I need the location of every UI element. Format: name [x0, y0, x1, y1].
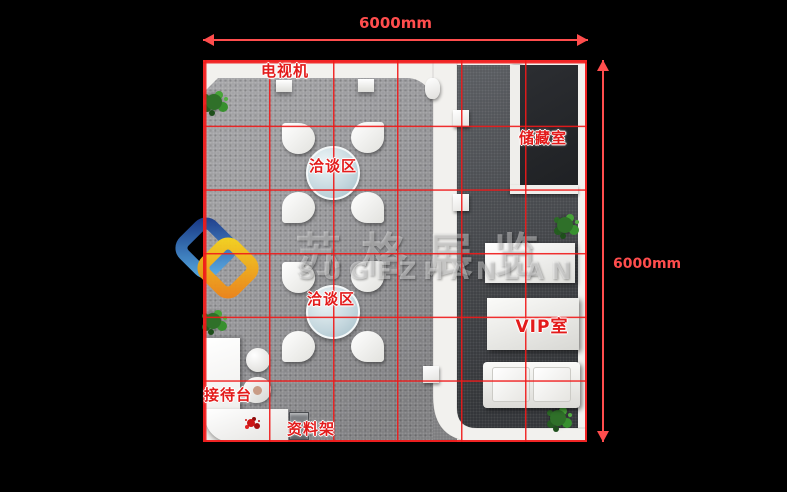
dimension-top: 6000mm: [203, 14, 588, 54]
label-meeting-area-1: 洽谈区: [309, 159, 357, 174]
chair: [282, 331, 315, 362]
booth-area: 电视机 洽谈区 洽谈区 储藏室 VIP室 接待台 资料架: [203, 60, 587, 442]
chair: [351, 122, 384, 153]
chair: [351, 331, 384, 362]
dimension-right: 6000mm: [594, 60, 684, 442]
storage-room-floor: [520, 65, 578, 185]
vip-sofa: [483, 362, 580, 408]
label-vip-room: VIP室: [516, 319, 569, 336]
label-reception-desk: 接待台: [204, 388, 252, 403]
plant: [550, 410, 566, 426]
storage-wall-horizontal: [510, 185, 578, 194]
plant: [557, 217, 573, 233]
stool: [246, 348, 270, 372]
dimension-top-arrow: [203, 39, 588, 41]
dimension-right-label: 6000mm: [613, 256, 681, 272]
chair: [282, 192, 315, 223]
label-storage-room: 储藏室: [519, 131, 567, 146]
wall-stub: [453, 194, 469, 211]
plant: [205, 313, 221, 329]
sofa-cushion: [533, 367, 571, 402]
wall-stub: [453, 110, 469, 127]
wall-pillar: [425, 78, 440, 99]
vip-sideboard: [485, 243, 575, 283]
reception-desk: [205, 409, 288, 442]
dimension-right-arrow: [602, 60, 604, 442]
label-brochure-rack: 资料架: [287, 422, 335, 437]
floor-plan-stage: 6000mm 6000mm: [0, 0, 787, 492]
person-head: [253, 386, 262, 395]
plant: [206, 94, 222, 110]
storage-wall-vertical: [510, 65, 520, 185]
label-meeting-area-2: 洽谈区: [307, 292, 355, 307]
label-tv: 电视机: [261, 64, 309, 79]
chair: [282, 262, 315, 293]
tv-screen: [358, 79, 374, 92]
chair: [282, 123, 315, 154]
flower-decoration: [247, 419, 255, 427]
tv-screen: [276, 80, 292, 92]
sofa-cushion: [492, 367, 530, 402]
chair: [351, 192, 384, 223]
chair: [351, 261, 384, 292]
podium: [423, 366, 439, 383]
dimension-top-label: 6000mm: [359, 14, 432, 32]
